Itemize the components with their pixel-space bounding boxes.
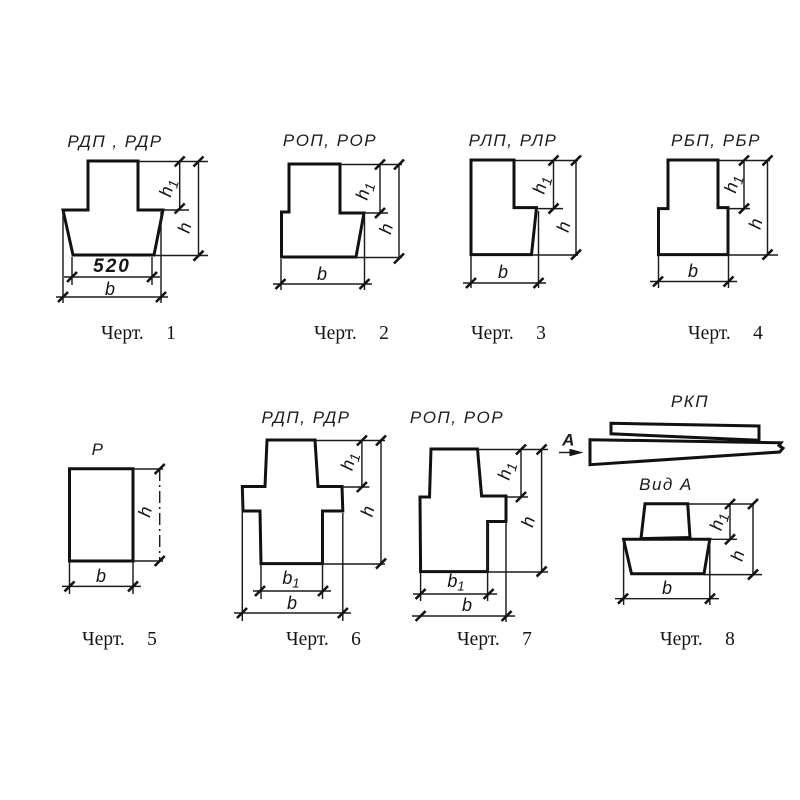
svg-text:Черт.: Черт. [471, 323, 514, 344]
svg-text:520: 520 [93, 256, 131, 277]
svg-text:h1: h1 [155, 177, 182, 200]
svg-text:b: b [662, 578, 672, 598]
svg-text:h: h [174, 220, 196, 235]
svg-text:РКП: РКП [671, 392, 709, 411]
svg-text:b: b [462, 595, 472, 615]
svg-text:b: b [498, 262, 508, 282]
svg-text:Черт.: Черт. [660, 629, 703, 650]
svg-text:РОП, РОР: РОП, РОР [283, 131, 377, 150]
svg-text:РДП , РДР: РДП , РДР [67, 132, 162, 151]
svg-text:h1: h1 [529, 174, 556, 197]
svg-text:h1: h1 [337, 450, 364, 473]
svg-text:h: h [745, 216, 767, 231]
svg-text:b1: b1 [282, 568, 299, 591]
svg-text:h: h [727, 548, 749, 563]
svg-text:b: b [688, 261, 698, 281]
svg-text:2: 2 [379, 323, 389, 344]
svg-text:А: А [561, 431, 576, 450]
svg-text:4: 4 [753, 323, 763, 344]
svg-text:1: 1 [166, 323, 176, 344]
svg-text:Черт.: Черт. [82, 629, 125, 650]
svg-text:5: 5 [147, 629, 157, 650]
svg-text:3: 3 [536, 323, 546, 344]
svg-text:6: 6 [351, 629, 361, 650]
svg-text:Вид А: Вид А [639, 475, 693, 494]
svg-text:Черт.: Черт. [286, 629, 329, 650]
svg-text:8: 8 [725, 629, 735, 650]
svg-text:h1: h1 [720, 173, 747, 196]
svg-text:Черт.: Черт. [314, 323, 357, 344]
svg-text:b1: b1 [447, 571, 464, 594]
svg-text:7: 7 [522, 629, 532, 650]
svg-text:h: h [357, 504, 379, 519]
svg-text:b: b [317, 264, 327, 284]
svg-text:b: b [105, 279, 115, 299]
svg-text:Черт.: Черт. [688, 323, 731, 344]
svg-text:РБП, РБР: РБП, РБР [671, 131, 761, 150]
svg-text:Черт.: Черт. [101, 323, 144, 344]
svg-text:b: b [287, 593, 297, 613]
svg-text:h1: h1 [706, 510, 733, 533]
svg-text:h: h [553, 219, 575, 234]
svg-text:h: h [134, 504, 156, 519]
svg-text:b: b [96, 566, 106, 586]
svg-text:Р: Р [92, 440, 105, 459]
svg-text:h: h [517, 514, 539, 529]
svg-text:РОП, РОР: РОП, РОР [410, 408, 504, 427]
svg-text:h1: h1 [494, 460, 521, 483]
svg-text:РЛП, РЛР: РЛП, РЛР [469, 131, 558, 150]
svg-text:h1: h1 [352, 180, 379, 203]
svg-text:Черт.: Черт. [457, 629, 500, 650]
svg-text:h: h [375, 221, 397, 236]
svg-text:РДП, РДР: РДП, РДР [261, 408, 350, 427]
